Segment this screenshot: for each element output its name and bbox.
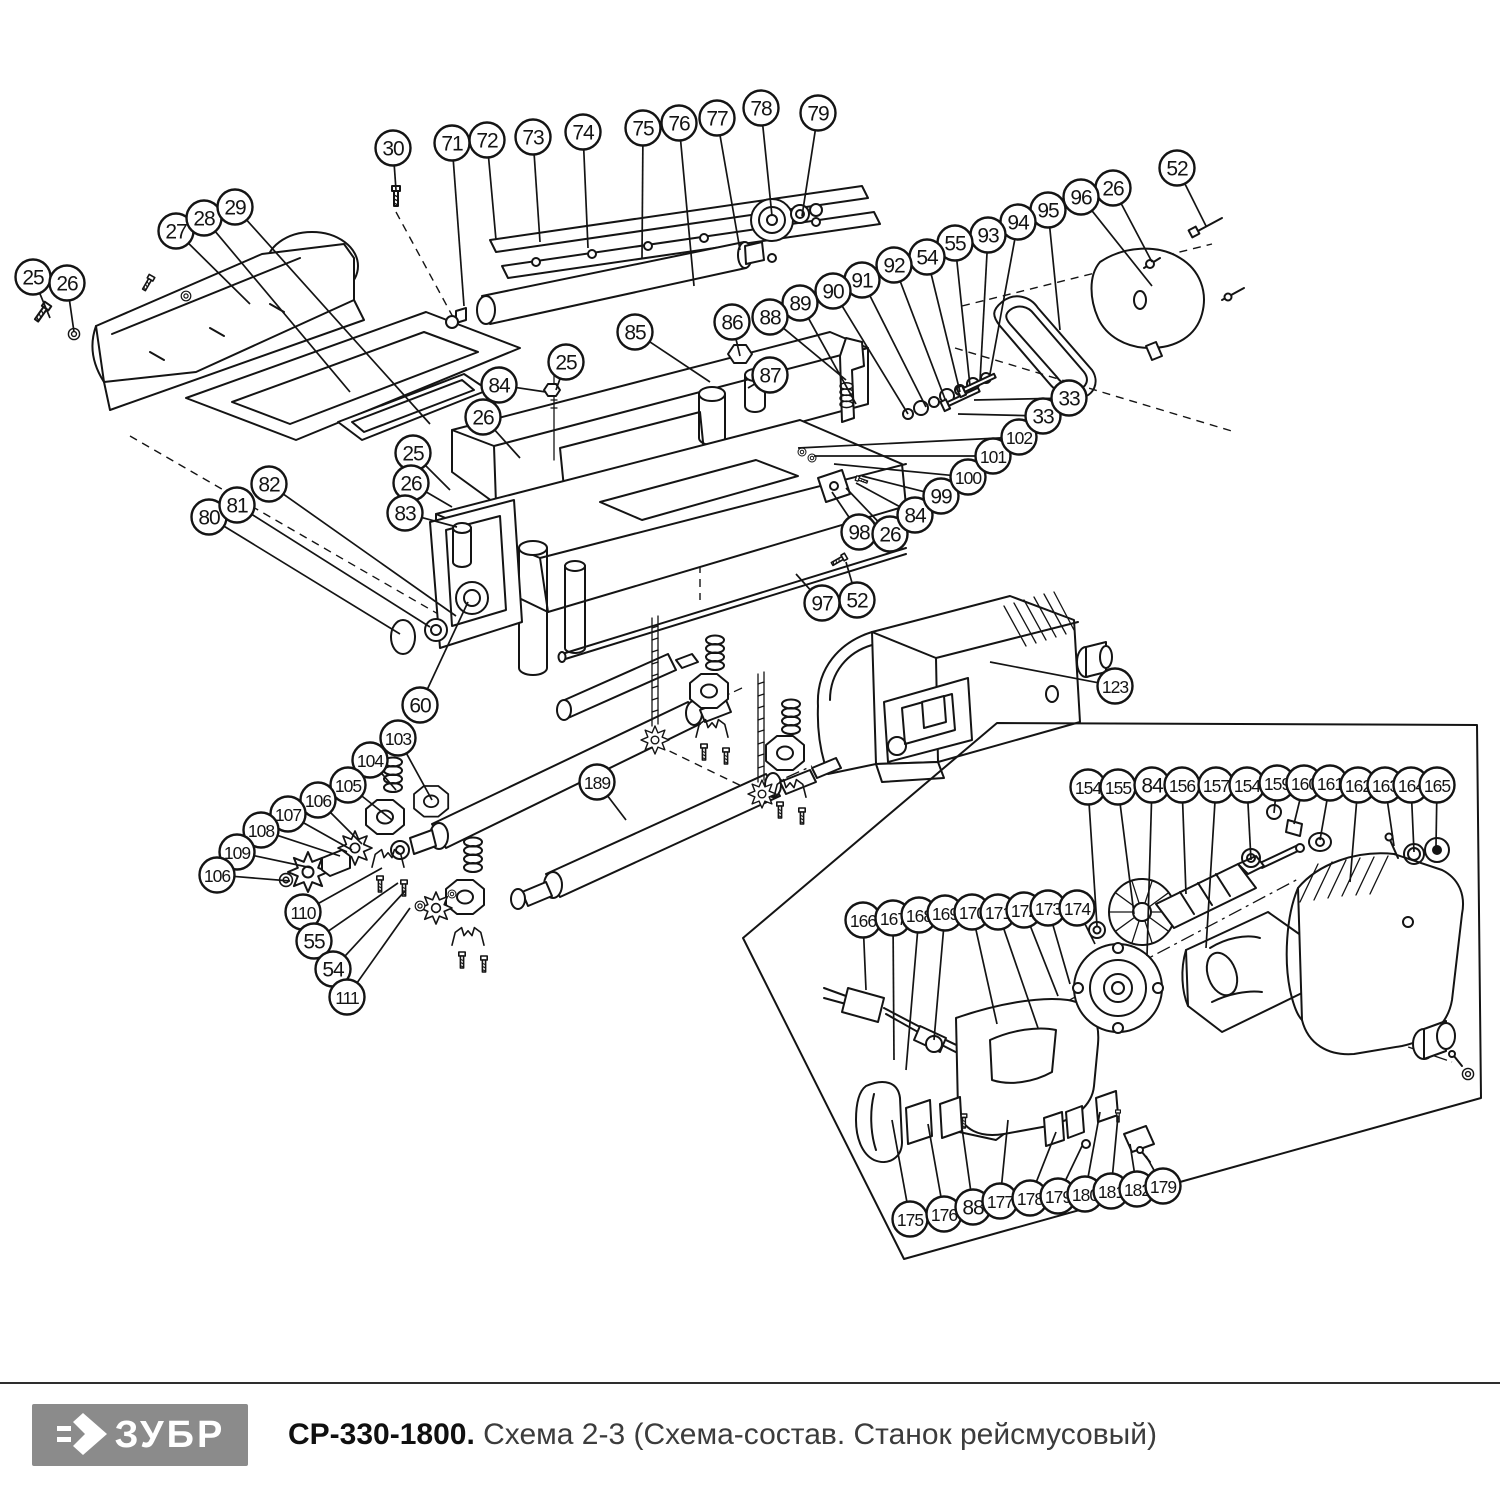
svg-text:108: 108	[248, 821, 274, 841]
svg-text:156: 156	[1169, 776, 1195, 796]
svg-text:26: 26	[1102, 178, 1124, 201]
svg-text:52: 52	[1166, 158, 1188, 181]
svg-text:25: 25	[402, 443, 424, 466]
svg-text:89: 89	[789, 293, 811, 316]
motor	[818, 592, 1112, 782]
footer: ЗУБР СР-330-1800. Схема 2-3 (Схема-соста…	[32, 1404, 1157, 1466]
svg-text:111: 111	[335, 988, 359, 1008]
balloon-52: 52	[1160, 151, 1207, 227]
svg-text:79: 79	[807, 103, 829, 126]
inset-motor-exploded	[824, 805, 1474, 1162]
svg-text:107: 107	[275, 805, 301, 825]
svg-text:178: 178	[1017, 1189, 1043, 1209]
exploded-parts-diagram: 2526272829307172737475767778795226969594…	[0, 0, 1500, 1500]
logo-text: ЗУБР	[115, 1416, 226, 1454]
svg-text:94: 94	[1007, 212, 1030, 235]
balloon-155: 155	[1101, 770, 1136, 915]
svg-text:88: 88	[962, 1197, 984, 1220]
svg-text:29: 29	[224, 197, 246, 220]
svg-text:189: 189	[584, 773, 610, 793]
balloon-77: 77	[700, 101, 741, 251]
svg-text:26: 26	[879, 524, 901, 547]
svg-text:72: 72	[476, 130, 498, 153]
svg-text:87: 87	[759, 365, 781, 388]
svg-text:33: 33	[1058, 388, 1080, 411]
svg-text:104: 104	[357, 751, 384, 771]
svg-text:84: 84	[1141, 775, 1164, 798]
svg-text:123: 123	[1102, 677, 1128, 697]
balloon-52: 52	[840, 562, 875, 618]
svg-text:76: 76	[668, 113, 690, 136]
feed-rollers	[391, 654, 841, 909]
balloon-189: 189	[580, 765, 627, 821]
svg-text:26: 26	[56, 273, 78, 296]
svg-text:88: 88	[759, 307, 781, 330]
svg-text:90: 90	[822, 281, 844, 304]
svg-text:100: 100	[955, 468, 982, 488]
svg-text:54: 54	[916, 247, 939, 270]
schema-caption: Схема 2-3 (Схема-состав. Станок рейсмусо…	[475, 1418, 1157, 1451]
svg-text:176: 176	[931, 1205, 957, 1225]
svg-text:27: 27	[165, 221, 187, 244]
svg-text:60: 60	[409, 695, 431, 718]
svg-text:105: 105	[335, 776, 361, 796]
svg-text:177: 177	[987, 1192, 1013, 1212]
svg-text:82: 82	[258, 474, 280, 497]
svg-text:103: 103	[385, 729, 411, 749]
svg-text:71: 71	[441, 133, 463, 156]
balloon-80: 80	[192, 500, 401, 635]
balloon-157: 157	[1199, 768, 1234, 949]
svg-text:25: 25	[22, 267, 44, 290]
svg-text:80: 80	[198, 507, 220, 530]
balloon-179: 179	[1146, 1156, 1181, 1204]
double-chevron-arrow-icon	[55, 1411, 107, 1459]
svg-text:165: 165	[1424, 776, 1450, 796]
balloon-72: 72	[470, 123, 505, 241]
footer-divider	[0, 1382, 1500, 1384]
svg-text:179: 179	[1150, 1177, 1176, 1197]
model-number: СР-330-1800.	[288, 1418, 475, 1451]
svg-text:101: 101	[980, 447, 1006, 467]
balloon-165: 165	[1420, 768, 1455, 847]
svg-text:93: 93	[977, 225, 999, 248]
svg-text:95: 95	[1037, 200, 1059, 223]
balloon-71: 71	[435, 126, 470, 307]
balloon-176: 176	[927, 1124, 962, 1232]
svg-text:85: 85	[624, 322, 646, 345]
svg-text:97: 97	[811, 593, 833, 616]
balloon-84: 84	[482, 368, 547, 403]
svg-text:154: 154	[1075, 778, 1102, 798]
svg-text:77: 77	[706, 108, 728, 131]
svg-text:175: 175	[897, 1210, 923, 1230]
svg-text:55: 55	[944, 233, 966, 256]
page-title: СР-330-1800. Схема 2-3 (Схема-состав. Ст…	[288, 1418, 1157, 1452]
svg-text:84: 84	[488, 375, 511, 398]
svg-text:84: 84	[904, 505, 927, 528]
svg-text:26: 26	[400, 473, 422, 496]
svg-text:28: 28	[193, 208, 215, 231]
zubr-logo: ЗУБР	[32, 1404, 248, 1466]
svg-text:33: 33	[1032, 406, 1054, 429]
svg-text:174: 174	[1064, 899, 1091, 919]
svg-text:30: 30	[382, 138, 404, 161]
svg-text:55: 55	[303, 931, 325, 954]
svg-text:26: 26	[472, 407, 494, 430]
svg-text:54: 54	[322, 959, 345, 982]
svg-text:110: 110	[291, 903, 317, 923]
svg-text:96: 96	[1070, 187, 1092, 210]
svg-text:102: 102	[1006, 428, 1032, 448]
svg-text:25: 25	[555, 352, 577, 375]
svg-text:81: 81	[226, 495, 248, 518]
svg-text:106: 106	[204, 866, 230, 886]
balloon-73: 73	[516, 120, 551, 243]
balloon-156: 156	[1165, 768, 1200, 895]
svg-text:99: 99	[930, 486, 952, 509]
balloon-85: 85	[618, 315, 711, 383]
svg-text:154: 154	[1234, 776, 1261, 796]
balloon-30: 30	[376, 131, 411, 191]
svg-text:155: 155	[1105, 778, 1131, 798]
balloon-75: 75	[626, 111, 661, 259]
balloon-95: 95	[1031, 193, 1066, 331]
svg-text:52: 52	[846, 590, 868, 613]
balloon-78: 78	[744, 91, 779, 217]
svg-text:92: 92	[883, 255, 905, 278]
svg-text:83: 83	[394, 503, 416, 526]
svg-text:166: 166	[850, 911, 876, 931]
svg-text:106: 106	[305, 791, 331, 811]
balloon-54: 54	[910, 240, 961, 393]
svg-text:74: 74	[572, 122, 595, 145]
balloon-174: 174	[1060, 891, 1096, 945]
svg-text:73: 73	[522, 127, 544, 150]
svg-text:173: 173	[1035, 899, 1061, 919]
svg-text:157: 157	[1203, 776, 1229, 796]
svg-text:98: 98	[848, 522, 870, 545]
svg-text:78: 78	[750, 98, 772, 121]
svg-text:86: 86	[721, 312, 743, 335]
balloon-26: 26	[50, 266, 85, 333]
svg-text:91: 91	[851, 270, 873, 293]
balloon-93: 93	[971, 218, 1006, 382]
svg-text:75: 75	[632, 118, 654, 141]
